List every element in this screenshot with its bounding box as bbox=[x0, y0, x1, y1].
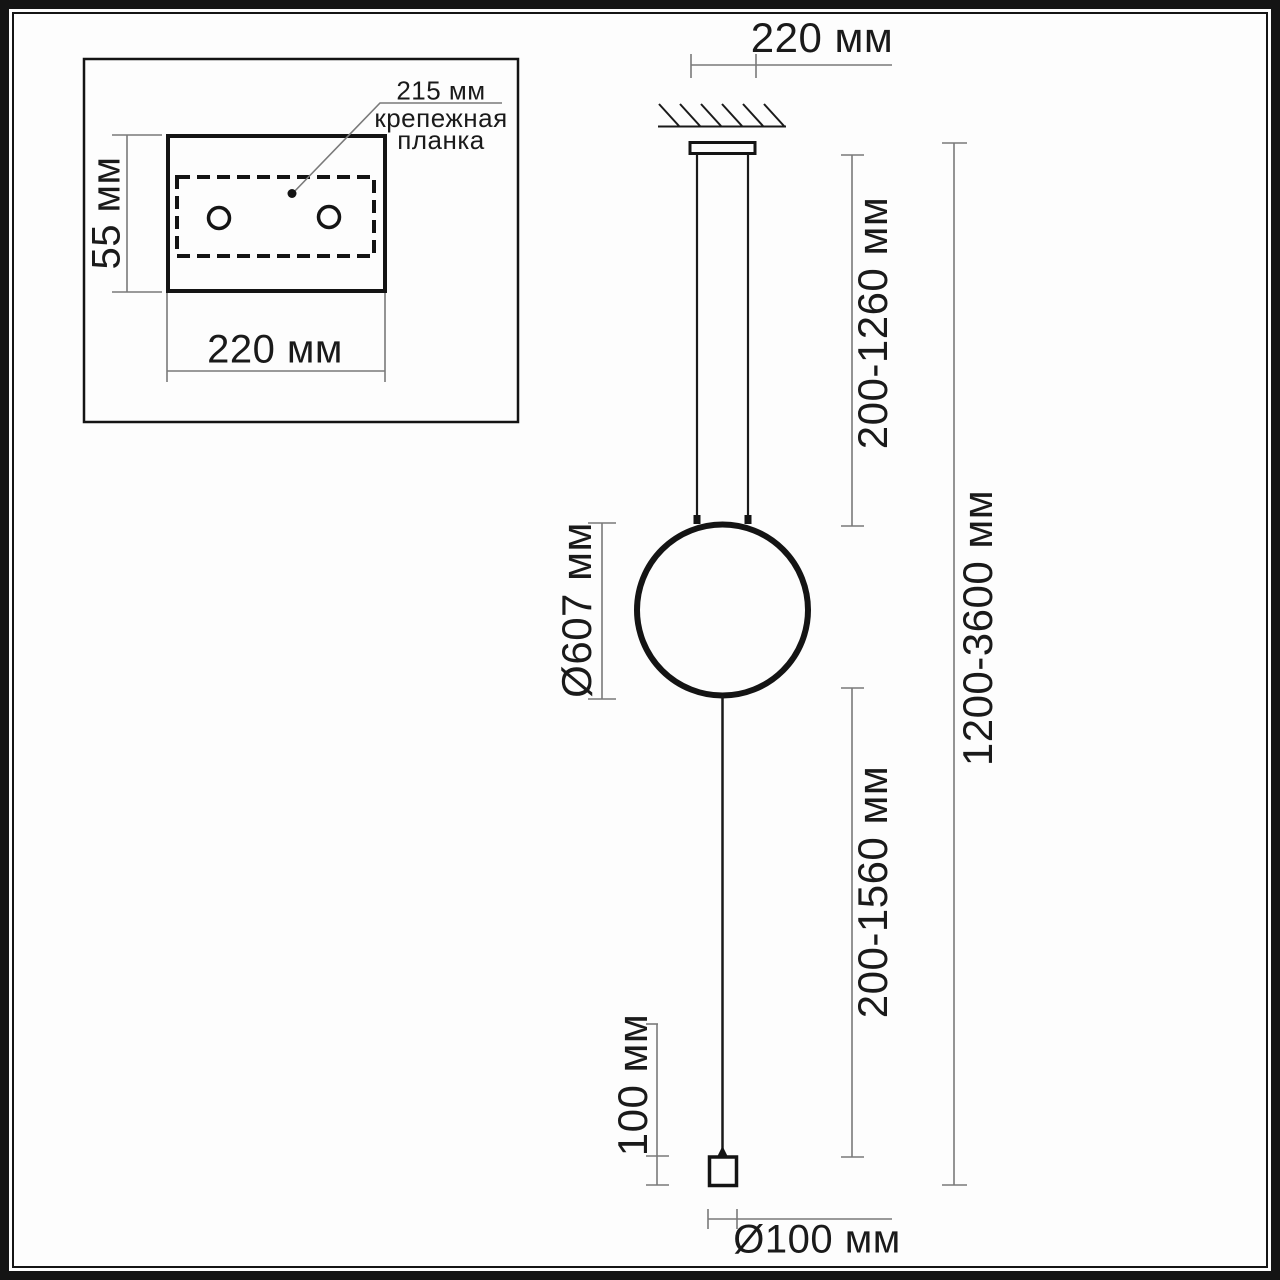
canopy-plate-outline bbox=[168, 136, 385, 291]
ceiling-canopy bbox=[690, 143, 755, 154]
upper-suspension-dim-label: 200-1260 мм bbox=[849, 197, 897, 449]
weight-diameter-dim-label: Ø100 мм bbox=[733, 1218, 900, 1263]
canopy-width-dim-label: 220 мм bbox=[751, 14, 894, 62]
plate-width-dim-label: 220 мм bbox=[207, 328, 343, 373]
plate-length-label: 215 мм bbox=[396, 76, 485, 107]
plate-name-label: крепежная планка bbox=[374, 107, 507, 151]
mounting-hole-left bbox=[209, 208, 230, 229]
leader-dot bbox=[288, 189, 297, 198]
cable-connector-right bbox=[745, 515, 752, 524]
cable-connector-bottom bbox=[718, 1146, 728, 1156]
lamp-dimension-drawing: 215 мм крепежная планка 55 мм 220 мм 220… bbox=[0, 0, 1280, 1280]
floor-weight bbox=[710, 1157, 737, 1186]
mounting-hole-right bbox=[319, 207, 340, 228]
lamp-body bbox=[637, 143, 808, 1186]
cable-connector-left bbox=[694, 515, 701, 524]
ring-diameter-dim-label: Ø607 мм bbox=[553, 522, 601, 698]
mounting-bar-dashed-outline bbox=[177, 177, 374, 256]
weight-height-dim-label: 100 мм bbox=[609, 1014, 657, 1157]
plate-name-line2: планка bbox=[397, 125, 484, 155]
lower-suspension-dim-label: 200-1560 мм bbox=[849, 766, 897, 1018]
plate-height-dim-label: 55 мм bbox=[85, 156, 130, 269]
ceiling-hatch bbox=[658, 104, 786, 127]
light-ring bbox=[637, 525, 808, 696]
total-height-dim-label: 1200-3600 мм bbox=[954, 490, 1002, 766]
